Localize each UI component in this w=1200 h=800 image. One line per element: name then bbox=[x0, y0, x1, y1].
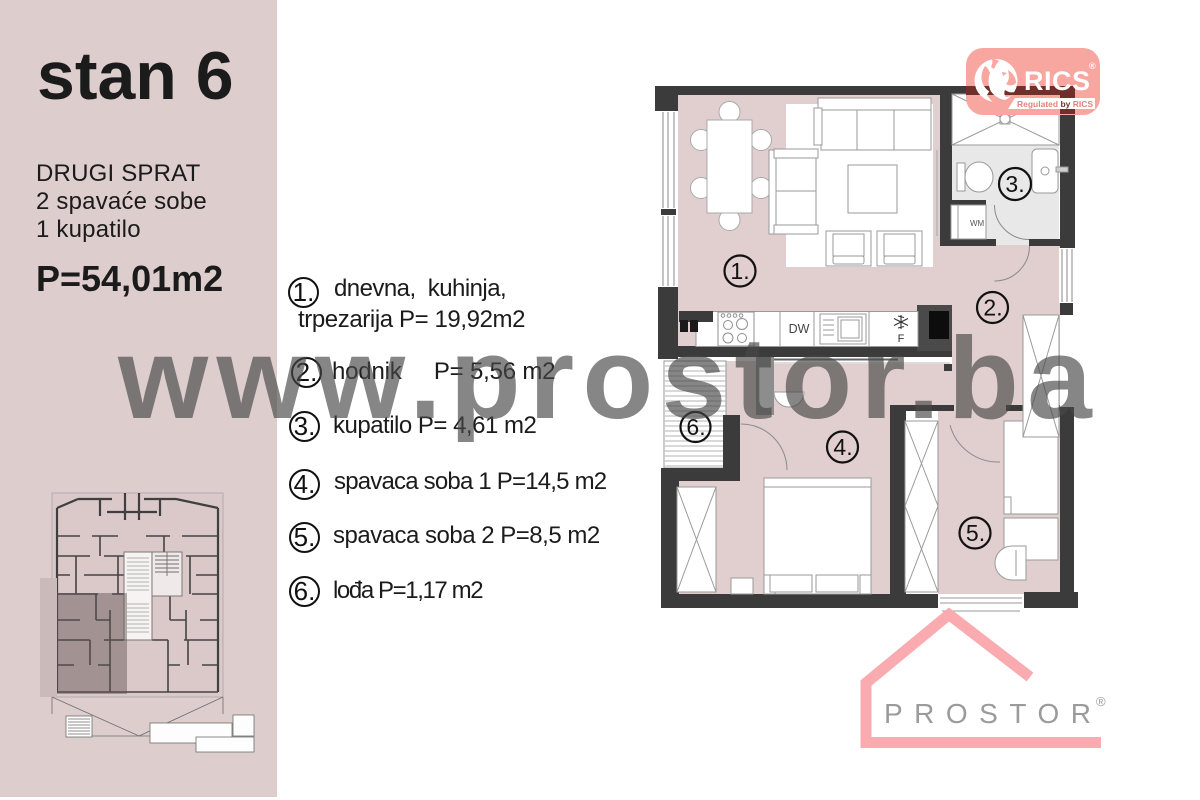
svg-text:1.: 1. bbox=[730, 258, 749, 284]
svg-text:®: ® bbox=[1089, 61, 1096, 71]
svg-text:RICS: RICS bbox=[1024, 66, 1090, 96]
svg-text:5.: 5. bbox=[966, 520, 985, 546]
svg-text:WM: WM bbox=[970, 219, 985, 228]
svg-text:PROSTOR: PROSTOR bbox=[884, 698, 1102, 729]
svg-text:3.: 3. bbox=[1005, 171, 1024, 197]
svg-text:Regulated by RICS: Regulated by RICS bbox=[1017, 99, 1093, 109]
svg-text:®: ® bbox=[1096, 694, 1106, 709]
